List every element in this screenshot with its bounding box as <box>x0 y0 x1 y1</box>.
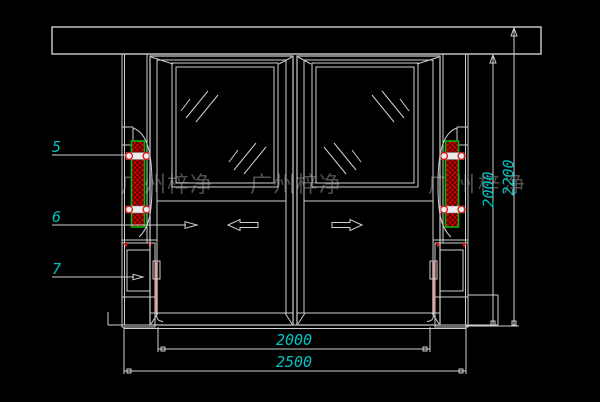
door-glass-pane <box>172 63 278 187</box>
cad-drawing-canvas: 广州梓净 广州梓净 广州梓净 <box>0 0 600 402</box>
dimension-door-opening-width: 2000 <box>270 333 318 348</box>
dimension-overall-width: 2500 <box>270 355 318 370</box>
dimension-overall-height: 2200 <box>502 154 517 202</box>
slide-direction-right-arrow-icon <box>332 220 362 231</box>
header-beam <box>52 27 541 54</box>
slide-direction-left-arrow-icon <box>228 220 258 231</box>
glass-hatch-marks <box>324 91 409 174</box>
glass-hatch-marks <box>181 91 266 174</box>
callout-label-6: 6 <box>52 210 61 225</box>
left-door-panel <box>150 56 293 325</box>
leader-arrowhead-icon <box>133 274 143 279</box>
door-glass-pane <box>312 63 418 187</box>
callout-label-5: 5 <box>52 140 61 155</box>
bolt-fixing <box>441 206 465 213</box>
bolt-fixing <box>126 153 150 160</box>
dimension-door-height: 2000 <box>482 166 497 214</box>
bolt-fixing <box>126 206 150 213</box>
callout-label-7: 7 <box>52 262 61 277</box>
leader-arrowhead-icon <box>185 222 197 229</box>
bolt-fixing <box>441 153 465 160</box>
right-door-panel <box>297 56 440 325</box>
